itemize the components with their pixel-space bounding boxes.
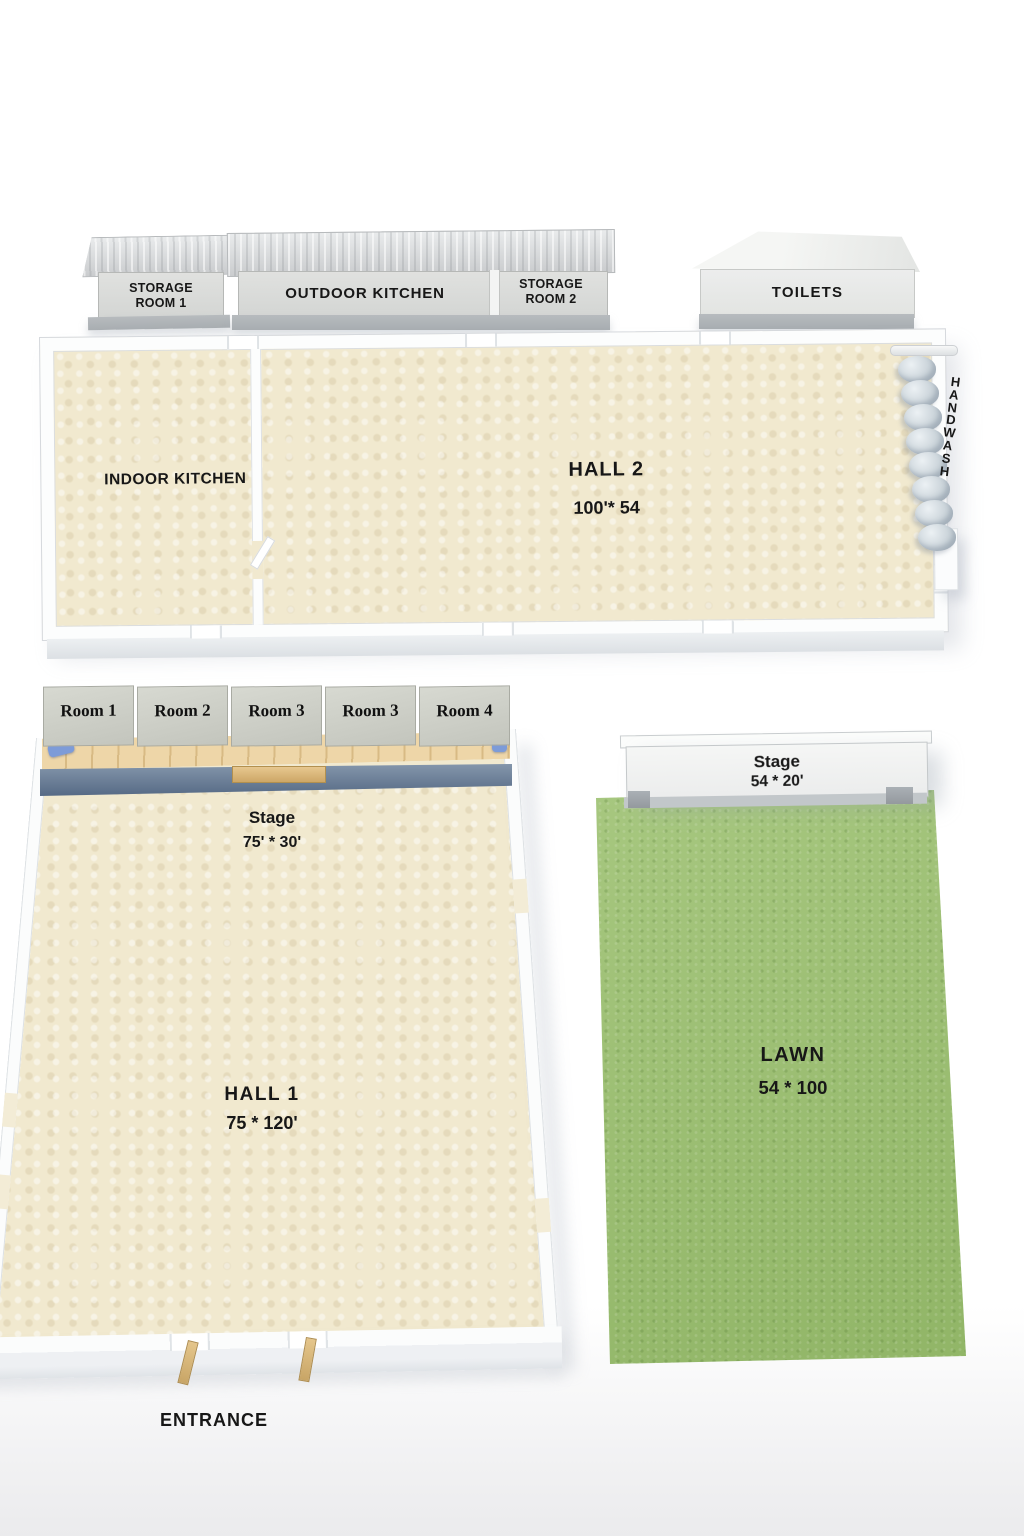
wash-basin xyxy=(915,500,953,527)
door-opening xyxy=(482,622,514,635)
room-panel-2: Room 2 xyxy=(137,685,228,746)
storage-room-1-label: STORAGE ROOM 1 xyxy=(99,281,223,311)
outdoor-stage-foot-right xyxy=(886,787,913,804)
outdoor-stage-foot-left xyxy=(628,791,650,808)
room-label: Room 3 xyxy=(326,700,415,721)
venue-floor-plan: STORAGE ROOM 1 OUTDOOR KITCHEN STORAGE R… xyxy=(0,0,1024,1536)
hand-wash-label: H A N D W A S H xyxy=(936,375,964,479)
hand-wash-station: H A N D W A S H xyxy=(896,342,976,562)
main-hall-building: INDOOR KITCHEN HALL 2 100'* 54 xyxy=(40,329,948,640)
storage-room-1-base xyxy=(88,315,230,330)
room-label: Room 1 xyxy=(44,700,133,721)
storage-room-2-label: STORAGE ROOM 2 xyxy=(498,277,604,307)
room-label: Room 4 xyxy=(420,700,509,721)
door-opening xyxy=(227,336,259,349)
storage-room-1-building: STORAGE ROOM 1 xyxy=(98,272,224,320)
outdoor-stage-dimensions: 54 * 20' xyxy=(627,771,927,794)
wash-basin xyxy=(904,404,942,431)
room-panel-3: Room 3 xyxy=(231,685,322,746)
indoor-stage-dimensions: 75' * 30' xyxy=(182,834,362,852)
room-panel-5: Room 4 xyxy=(419,685,510,746)
toilets-label: TOILETS xyxy=(701,284,914,301)
door-opening xyxy=(699,331,731,344)
wash-basin xyxy=(901,380,939,407)
indoor-stage-label: Stage xyxy=(182,808,362,828)
outdoor-kitchen-roof xyxy=(227,229,615,277)
hall-2-label: HALL 2 xyxy=(516,458,696,483)
hall-2-dimensions: 100'* 54 xyxy=(517,497,697,520)
door-opening xyxy=(702,620,734,633)
hall-1-label: HALL 1 xyxy=(162,1084,362,1106)
hall-1-building: Room 1 Room 2 Room 3 Room 3 Room 4 Stage… xyxy=(0,682,572,1402)
outdoor-kitchen-base xyxy=(232,315,610,330)
room-label: Room 2 xyxy=(138,700,227,721)
wash-basin xyxy=(918,524,956,551)
indoor-kitchen-label: INDOOR KITCHEN xyxy=(77,470,273,490)
lawn-label: LAWN xyxy=(693,1044,893,1067)
wash-basin xyxy=(898,356,936,383)
hall-1-dimensions: 75 * 120' xyxy=(162,1113,362,1134)
door-opening xyxy=(190,625,222,638)
lawn-dimensions: 54 * 100 xyxy=(693,1077,893,1099)
door-opening xyxy=(465,334,497,347)
wash-basin xyxy=(912,476,950,503)
toilets-roof xyxy=(692,228,920,272)
lawn: LAWN 54 * 100 xyxy=(588,786,968,1364)
entrance-label: ENTRANCE xyxy=(114,1410,314,1431)
outdoor-kitchen-building: OUTDOOR KITCHEN STORAGE ROOM 2 xyxy=(238,271,608,319)
door-opening xyxy=(512,879,528,914)
storage-room-1-roof xyxy=(82,235,237,278)
room-label: Room 3 xyxy=(232,700,321,721)
toilets-base xyxy=(699,314,914,329)
toilets-building: TOILETS xyxy=(700,269,915,318)
room-panel-1: Room 1 xyxy=(43,685,134,746)
room-panel-4: Room 3 xyxy=(325,685,416,746)
door-opening xyxy=(535,1198,551,1233)
water-pipe xyxy=(890,345,958,356)
outdoor-kitchen-label: OUTDOOR KITCHEN xyxy=(239,285,491,302)
stage-step xyxy=(232,766,326,783)
